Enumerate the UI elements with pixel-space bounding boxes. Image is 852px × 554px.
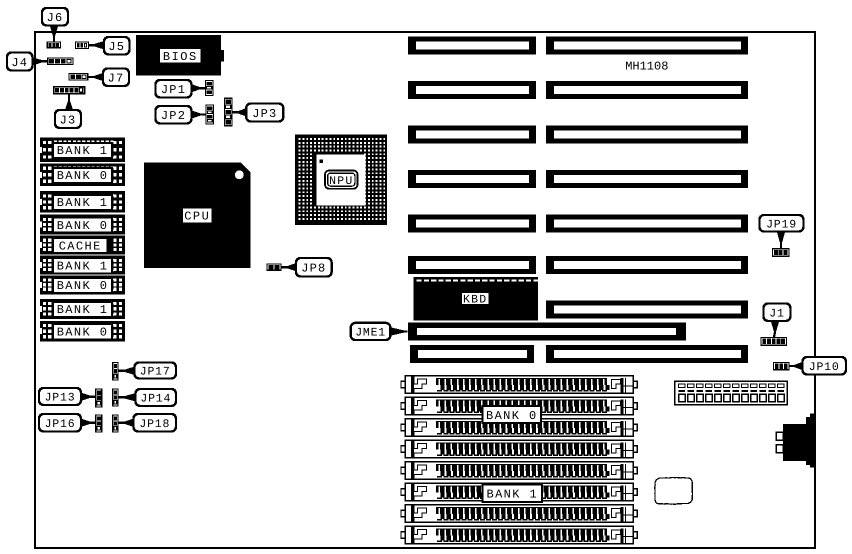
svg-text:JP10: JP10	[809, 361, 840, 374]
svg-text:KBD: KBD	[463, 294, 487, 307]
svg-text:BANK 0: BANK 0	[57, 219, 109, 233]
svg-text:CPU: CPU	[184, 210, 210, 224]
svg-text:J3: J3	[60, 113, 77, 127]
svg-text:BANK 0: BANK 0	[57, 279, 109, 293]
svg-text:JP16: JP16	[45, 418, 76, 431]
svg-text:JP8: JP8	[301, 262, 326, 276]
svg-text:BANK 0: BANK 0	[57, 169, 109, 183]
svg-text:J7: J7	[108, 72, 125, 86]
svg-text:JP2: JP2	[161, 109, 186, 123]
svg-text:BANK 1: BANK 1	[57, 303, 109, 317]
svg-text:JP3: JP3	[252, 107, 277, 121]
svg-text:JP13: JP13	[45, 392, 76, 405]
svg-text:BANK 1: BANK 1	[486, 488, 538, 502]
svg-text:NPU: NPU	[329, 175, 353, 188]
svg-text:BANK 1: BANK 1	[57, 259, 109, 273]
svg-text:BANK 0: BANK 0	[57, 326, 109, 340]
svg-text:JP14: JP14	[140, 393, 171, 406]
svg-text:J5: J5	[108, 40, 125, 54]
svg-text:JP18: JP18	[139, 418, 170, 431]
svg-text:JP1: JP1	[161, 83, 186, 97]
svg-text:J6: J6	[47, 11, 64, 25]
svg-text:J4: J4	[11, 56, 28, 70]
svg-text:BANK 1: BANK 1	[57, 144, 109, 158]
svg-text:JME1: JME1	[355, 327, 386, 340]
svg-text:MH1108: MH1108	[625, 60, 668, 74]
svg-text:BANK 0: BANK 0	[486, 409, 538, 423]
svg-text:CACHE: CACHE	[59, 239, 102, 253]
svg-text:JP17: JP17	[140, 366, 171, 379]
svg-text:BIOS: BIOS	[163, 50, 198, 64]
svg-text:JP19: JP19	[766, 218, 797, 231]
svg-text:J1: J1	[769, 307, 784, 320]
svg-text:BANK 1: BANK 1	[57, 196, 109, 210]
